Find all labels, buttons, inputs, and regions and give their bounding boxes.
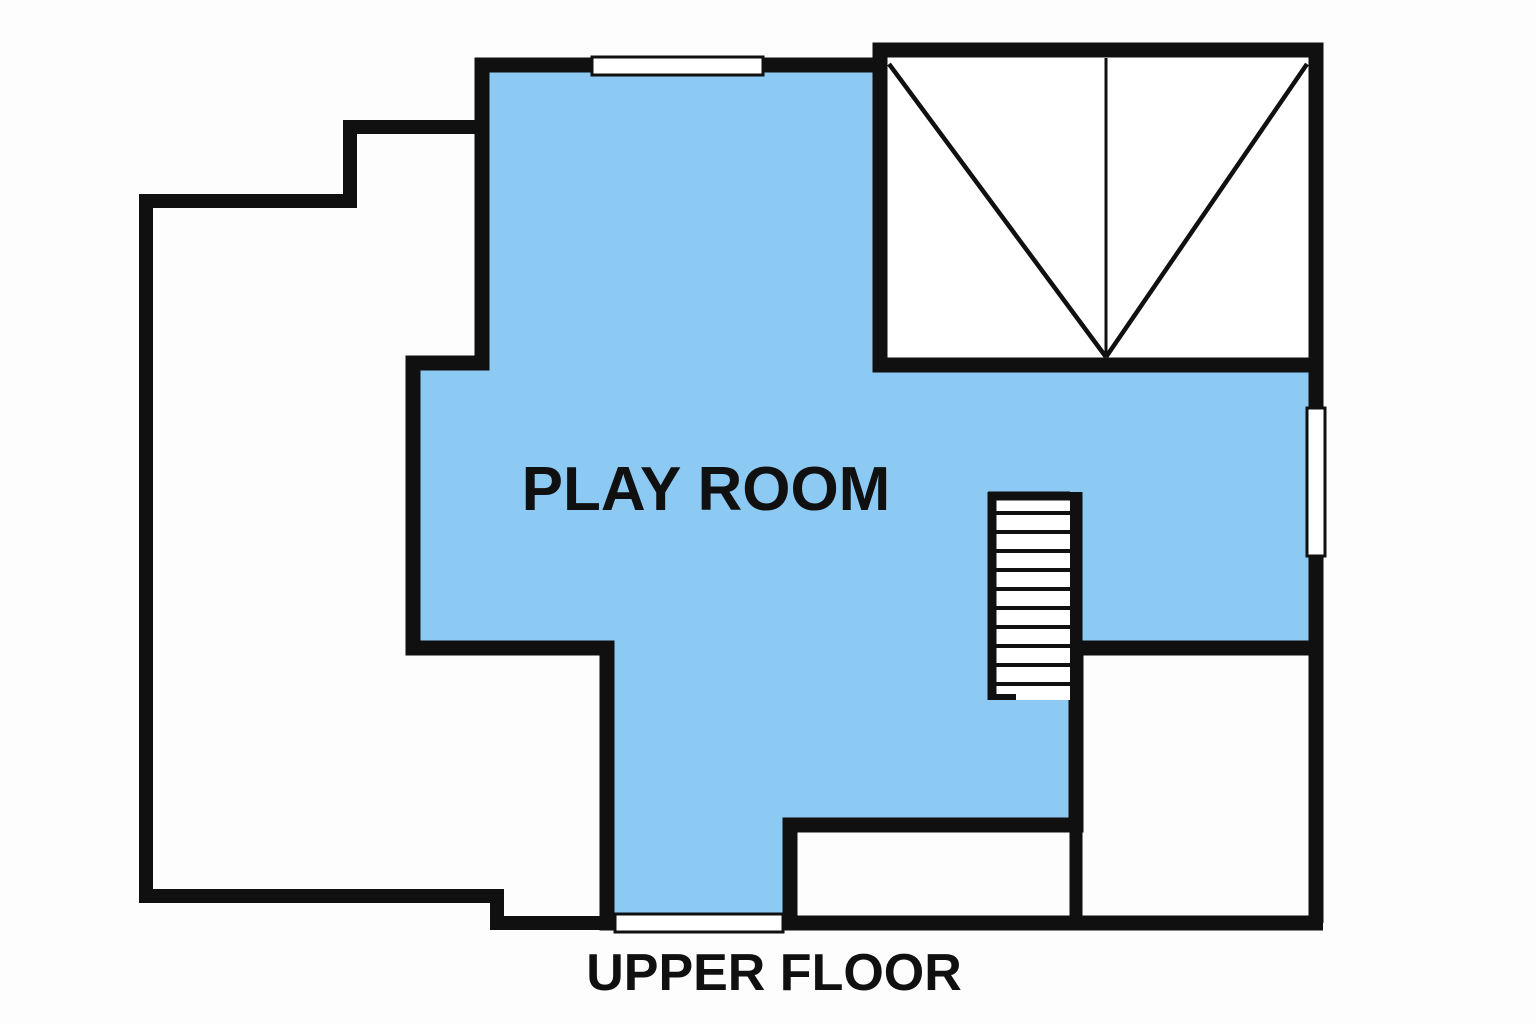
floor-plan-drawing: PLAY ROOM UPPER FLOOR <box>0 0 1536 1024</box>
play-room-label: PLAY ROOM <box>522 455 891 524</box>
floor-title-label: UPPER FLOOR <box>586 944 962 1002</box>
staircase-well <box>988 492 1070 700</box>
top-window-icon <box>592 57 763 75</box>
floor-plan-page: PLAY ROOM UPPER FLOOR <box>0 0 1536 1024</box>
vaulted-room-walls <box>880 50 1316 365</box>
bottom-window-icon <box>615 914 783 932</box>
vaulted-room <box>880 50 1316 365</box>
right-window-icon <box>1307 408 1325 556</box>
staircase-icon <box>988 492 1070 700</box>
